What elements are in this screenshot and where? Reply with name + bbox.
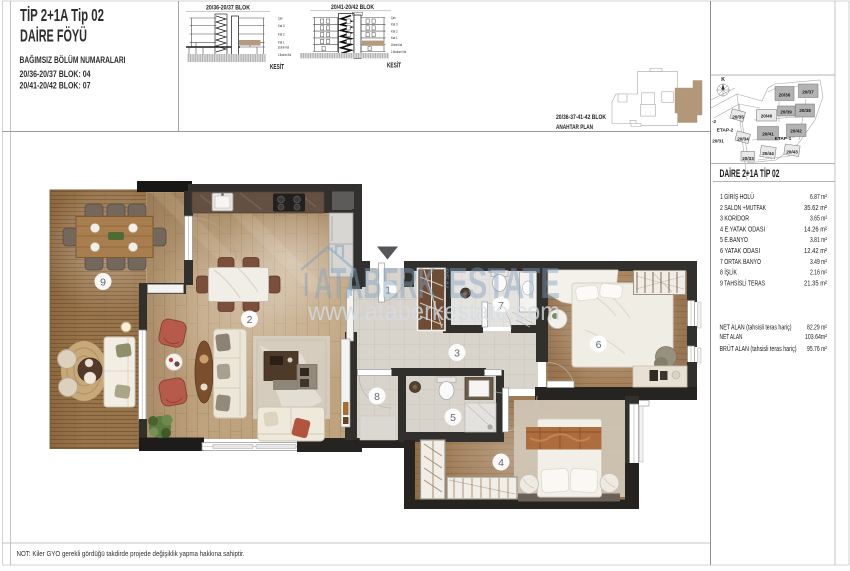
- svg-text:20/36-20/37 BLOK: 20/36-20/37 BLOK: [206, 5, 250, 12]
- svg-text:DAİRE FÖYÜ: DAİRE FÖYÜ: [20, 26, 87, 46]
- svg-text:K: K: [721, 77, 725, 83]
- svg-text:-2: -2: [712, 119, 717, 124]
- svg-text:9: 9: [100, 277, 106, 289]
- svg-text:8: 8: [374, 391, 380, 403]
- svg-text:TİP 2+1A Tip 02: TİP 2+1A Tip 02: [20, 5, 104, 25]
- svg-text:3.65 m²: 3.65 m²: [810, 216, 828, 223]
- svg-text:21.35 m²: 21.35 m²: [804, 280, 828, 287]
- svg-text:Çatı: Çatı: [391, 16, 396, 20]
- svg-text:20/36: 20/36: [779, 93, 791, 98]
- svg-text:2: 2: [247, 314, 253, 326]
- svg-text:Kat 2: Kat 2: [391, 29, 398, 33]
- svg-text:DAİRE 2+1A TİP 02: DAİRE 2+1A TİP 02: [720, 167, 780, 180]
- svg-text:4 E.YATAK ODASI: 4 E.YATAK ODASI: [720, 226, 765, 233]
- svg-text:6: 6: [596, 339, 602, 351]
- svg-text:2 SALON +MUTFAK: 2 SALON +MUTFAK: [720, 205, 766, 212]
- svg-text:20/36-37-41-42 BLOK: 20/36-37-41-42 BLOK: [556, 114, 606, 121]
- svg-text:5: 5: [450, 412, 456, 424]
- svg-text:20/36-20/37 BLOK: 04: 20/36-20/37 BLOK: 04: [20, 69, 91, 79]
- svg-text:8 İŞLİK: 8 İŞLİK: [720, 268, 737, 277]
- svg-text:95.76 m²: 95.76 m²: [807, 346, 827, 353]
- svg-text:ETAP-2: ETAP-2: [717, 128, 734, 134]
- svg-text:12.42 m²: 12.42 m²: [804, 248, 828, 255]
- svg-text:7 ORTAK BANYO: 7 ORTAK BANYO: [720, 259, 761, 266]
- svg-text:KESİT: KESİT: [270, 63, 284, 71]
- svg-text:20/31: 20/31: [712, 139, 724, 144]
- svg-text:Kat 3: Kat 3: [278, 24, 285, 28]
- svg-text:6.87 m²: 6.87 m²: [810, 194, 828, 201]
- svg-text:4: 4: [498, 457, 504, 469]
- svg-text:1 GİRİŞ HOLÜ: 1 GİRİŞ HOLÜ: [720, 192, 754, 201]
- svg-text:6 YATAK ODASI: 6 YATAK ODASI: [720, 248, 760, 255]
- svg-text:ETAP-1: ETAP-1: [775, 136, 792, 142]
- svg-text:14.26 m²: 14.26 m²: [804, 226, 828, 233]
- svg-text:NOT: Kiler GYO gerekli gördüğü: NOT: Kiler GYO gerekli gördüğü takdirde …: [17, 551, 245, 558]
- svg-text:20/33: 20/33: [742, 156, 754, 161]
- svg-text:20/42: 20/42: [790, 129, 802, 134]
- svg-text:9 TAHSİSLİ TERAS: 9 TAHSİSLİ TERAS: [720, 278, 765, 287]
- svg-text:1.Bodrum Kat: 1.Bodrum Kat: [391, 50, 406, 54]
- svg-text:NET ALAN: NET ALAN: [720, 334, 743, 341]
- svg-text:Kat 3: Kat 3: [391, 23, 398, 27]
- svg-text:35.62 m²: 35.62 m²: [804, 205, 828, 212]
- svg-text:20/41-20/42 BLOK: 07: 20/41-20/42 BLOK: 07: [20, 81, 91, 91]
- svg-text:NET ALAN (tahsisli teras hariç: NET ALAN (tahsisli teras hariç): [720, 325, 792, 332]
- svg-text:20/34: 20/34: [737, 137, 749, 142]
- svg-text:20/44: 20/44: [762, 151, 774, 156]
- svg-text:Zemin Kat: Zemin Kat: [391, 43, 402, 47]
- svg-text:20/41: 20/41: [762, 132, 774, 137]
- svg-text:KESİT: KESİT: [387, 62, 401, 70]
- svg-text:3 KORİDOR: 3 KORİDOR: [720, 214, 749, 223]
- svg-text:www.ataberkestate.com: www.ataberkestate.com: [307, 296, 560, 326]
- svg-text:20/35: 20/35: [732, 115, 744, 120]
- svg-text:5 E.BANYO: 5 E.BANYO: [720, 237, 748, 244]
- svg-text:20/43: 20/43: [786, 150, 798, 155]
- svg-text:3.49 m²: 3.49 m²: [810, 259, 828, 266]
- svg-text:Zemin Kat: Zemin Kat: [278, 45, 289, 49]
- svg-text:1.Bodrum Kat: 1.Bodrum Kat: [278, 53, 291, 57]
- svg-text:20/39: 20/39: [780, 110, 792, 115]
- svg-text:3.81 m²: 3.81 m²: [810, 237, 828, 244]
- svg-text:2.16 m²: 2.16 m²: [810, 270, 828, 277]
- svg-text:BRÜT ALAN (tahsisli teras hari: BRÜT ALAN (tahsisli teras hariç): [720, 345, 797, 353]
- svg-text:Kat 1: Kat 1: [391, 36, 398, 40]
- svg-text:Kat 1: Kat 1: [278, 41, 285, 45]
- svg-text:20/37: 20/37: [802, 90, 814, 95]
- svg-text:Çatı: Çatı: [278, 16, 283, 20]
- svg-text:20/41-20/42 BLOK: 20/41-20/42 BLOK: [331, 4, 374, 11]
- svg-text:ANAHTAR PLAN: ANAHTAR PLAN: [556, 124, 593, 131]
- svg-text:103.64m²: 103.64m²: [805, 334, 827, 341]
- svg-text:82.29 m²: 82.29 m²: [807, 325, 827, 332]
- svg-text:BAĞIMSIZ BÖLÜM NUMARALARI: BAĞIMSIZ BÖLÜM NUMARALARI: [20, 54, 126, 65]
- svg-text:Kat 2: Kat 2: [278, 32, 285, 36]
- svg-text:20/40: 20/40: [761, 114, 773, 119]
- svg-text:3: 3: [454, 348, 460, 360]
- svg-text:20/38: 20/38: [799, 108, 811, 113]
